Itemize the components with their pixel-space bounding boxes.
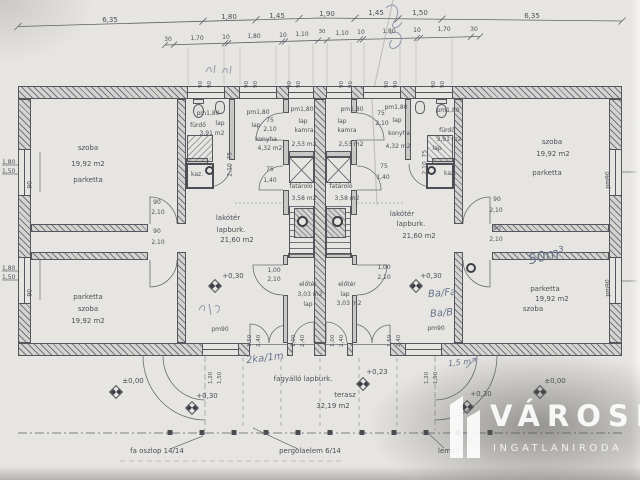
- jamb-dim: 90: [287, 81, 293, 88]
- jamb-dim: 90: [440, 81, 446, 88]
- parapet-dim: pm90: [605, 171, 612, 188]
- room-name: konyha: [388, 131, 410, 138]
- dim-label: 6,35: [102, 17, 118, 25]
- room-name: kamra: [337, 128, 356, 135]
- wall-right: [609, 99, 622, 150]
- boiler-label: kaz.: [444, 171, 456, 178]
- door-dim: 1,00: [291, 335, 297, 347]
- room-floor: lap: [215, 121, 224, 128]
- wall-top-center: [313, 86, 327, 99]
- terrace-name: terasz: [334, 392, 356, 400]
- dim-label: 1,45: [368, 10, 384, 18]
- door-dim: 2,10: [151, 240, 164, 247]
- room-floor: lap: [303, 302, 312, 309]
- room-area: 4,32 m2: [386, 144, 411, 151]
- dim-label: 1,45: [269, 13, 285, 21]
- watermark-logo-icon: [467, 410, 480, 458]
- room-floor: parketta: [73, 177, 103, 185]
- wall-top: [224, 86, 240, 99]
- dim-label: 30: [319, 29, 326, 35]
- parapet: pm1,80: [290, 107, 313, 114]
- jamb-dim: 90: [253, 81, 259, 88]
- door-dim: 2,40: [396, 335, 402, 347]
- wall-bottom: [18, 343, 203, 356]
- elevation-marker-icon: [357, 378, 368, 389]
- wall-szoba-tl: [177, 99, 186, 224]
- parapet-dim: pm90: [605, 279, 612, 296]
- jamb-dim: 90: [339, 81, 345, 88]
- note-pergola: pergolaelem 6/14: [279, 448, 341, 456]
- door-dim: 2,10: [489, 237, 502, 244]
- door-dim: 90: [493, 197, 501, 204]
- jamb-dim: 90: [207, 81, 213, 88]
- room-floor: lap: [298, 119, 307, 126]
- room-area: 3,58 m2: [292, 196, 317, 203]
- room-name: lakótér: [390, 211, 414, 219]
- door-dim: 2,10: [227, 163, 234, 176]
- door-dim: 90: [153, 200, 161, 207]
- wall-eloter-e-r: [352, 255, 357, 265]
- parapet-dim: pm90: [211, 327, 228, 334]
- dim-label: 1,10: [295, 32, 308, 39]
- floorplan-photo: 6,35 1,80 1,45 1,90 1,45 1,50 6,35 30 1,…: [0, 0, 640, 480]
- wall-bottom-center: [314, 343, 326, 356]
- wall-right: [609, 303, 622, 343]
- room-area: 3,91 m2: [437, 137, 462, 144]
- dim-label: 1,80: [247, 34, 260, 41]
- room-floor: lapburk.: [217, 227, 246, 235]
- parapet: pm1,80: [384, 105, 407, 112]
- column-circle-r: [466, 263, 476, 273]
- parapet: pm1,80: [340, 107, 363, 114]
- door-dim: 90: [493, 226, 501, 233]
- shower-l: [187, 135, 213, 162]
- door-dim: 75: [227, 152, 234, 160]
- door-dim: 1,50: [387, 335, 393, 347]
- handwritten-note: Ba/Fa: [428, 287, 457, 300]
- party-wall: [314, 99, 326, 343]
- room-area: 3,58 m2: [335, 196, 360, 203]
- room-area: 19,92 m2: [535, 296, 569, 304]
- stair-upper-r: [326, 157, 351, 183]
- door-dim: 1,40: [263, 178, 276, 185]
- room-floor: lapburk.: [397, 221, 426, 229]
- boiler-label: kaz.: [191, 172, 203, 179]
- room-area: 2,53 m2: [292, 142, 317, 149]
- door-dim: 2,10: [375, 121, 388, 128]
- room-floor: parketta: [532, 170, 562, 178]
- window-dim: 1,80: [2, 266, 15, 273]
- room-area: 3,03 m2: [298, 292, 323, 299]
- jamb-dim: 90: [244, 81, 250, 88]
- dim-label: 1,50: [412, 10, 428, 18]
- door-dim: 1,00: [377, 265, 390, 272]
- door-dim: 2,40: [339, 335, 345, 347]
- handwritten-note: 2ka/1m: [245, 351, 284, 367]
- photo-vignette: [0, 0, 90, 60]
- level-label: +0,30: [196, 393, 217, 401]
- room-floor: lap: [251, 123, 260, 130]
- parapet-dim: pm90: [427, 326, 444, 333]
- wall-top: [452, 86, 622, 99]
- wall-szoba-tr-s: [492, 224, 609, 232]
- room-floor: lap: [432, 146, 441, 153]
- window-dim: 1,50: [2, 169, 15, 176]
- room-name: szoba: [542, 139, 562, 147]
- window-dim: 1,50: [217, 372, 223, 384]
- door-dim: 75: [422, 150, 429, 158]
- terrace-area: 32,19 m2: [316, 403, 350, 411]
- door-dim: 1,40: [376, 175, 389, 182]
- door-dim: 90: [153, 229, 161, 236]
- sink-r: [415, 101, 425, 114]
- wall-left: [18, 303, 31, 343]
- dim-ticks-row2: [162, 34, 483, 49]
- room-area: 21,60 m2: [402, 233, 436, 241]
- wall-right: [609, 195, 622, 258]
- wall-szoba-bl: [177, 252, 186, 343]
- room-name: lakótér: [216, 215, 240, 223]
- level-label: +0,30: [222, 273, 243, 281]
- door-dim: 2,10: [263, 127, 276, 134]
- door-dim: 75: [266, 118, 274, 125]
- door-dim: 2,40: [256, 335, 262, 347]
- agency-watermark: VÁROSI INGATLANIRODA: [436, 386, 640, 478]
- flue-circle-l: [297, 216, 308, 227]
- wall-eloter-w-l: [283, 255, 288, 265]
- room-area: 2,53 m2: [339, 142, 364, 149]
- parapet: pm1,80: [436, 108, 459, 115]
- handwritten-note: Ba/B: [430, 307, 454, 320]
- dim-label: 1,10: [335, 31, 348, 38]
- dim-label: 10: [279, 33, 287, 40]
- dim-label: 30: [470, 27, 478, 34]
- room-name: fatároló: [329, 184, 352, 191]
- watermark-logo-icon: [450, 396, 463, 458]
- dim-label: 1,90: [319, 11, 335, 19]
- room-area: 19,92 m2: [71, 161, 105, 169]
- wall-konyha-kamra-l: [283, 99, 289, 113]
- door-dim: 75: [266, 167, 274, 174]
- room-name: előtér: [299, 282, 317, 289]
- room-floor: lap: [340, 292, 349, 299]
- wall-left: [18, 195, 31, 258]
- window-dim: 90: [27, 181, 34, 189]
- room-floor: parketta: [73, 294, 103, 302]
- room-floor: lap: [337, 119, 346, 126]
- room-name: előtér: [338, 282, 356, 289]
- jamb-dim: 90: [296, 81, 302, 88]
- dim-label: 1,80: [221, 14, 237, 22]
- dim-label: 1,70: [437, 27, 450, 34]
- wall-szoba-tr: [454, 99, 463, 224]
- door-dim: 1,00: [330, 335, 336, 347]
- handwritten-note: 50m³: [527, 244, 567, 268]
- room-floor: lap: [392, 118, 401, 125]
- window-dim: 1,80: [2, 160, 15, 167]
- window-bottom-left: [203, 343, 238, 356]
- door-dim: 75: [380, 164, 388, 171]
- room-area: 19,92 m2: [536, 151, 570, 159]
- wall-top: [400, 86, 416, 99]
- door-dim: 75: [377, 111, 385, 118]
- room-name: szoba: [78, 306, 98, 314]
- room-floor: parketta: [530, 286, 560, 294]
- room-area: 3,03 m2: [337, 301, 362, 308]
- room-area: 4,32 m2: [258, 146, 283, 153]
- elevation-marker-icon: [410, 280, 421, 291]
- elevation-marker-icon: [186, 402, 197, 413]
- door-dim: 2,10: [377, 275, 390, 282]
- room-area: 19,92 m2: [71, 318, 105, 326]
- window-dim: 1,20: [208, 372, 214, 384]
- door-dim: 1,00: [267, 268, 280, 275]
- level-label: +0,30: [420, 273, 441, 281]
- dim-label: 1,70: [190, 36, 203, 43]
- terrace-floor: fagyálló lapburk.: [274, 376, 333, 384]
- dim-label: 30: [164, 37, 172, 44]
- jamb-dim: 90: [198, 81, 204, 88]
- dim-label: 10: [222, 35, 230, 42]
- wall-left: [18, 99, 31, 150]
- room-name: szoba: [78, 145, 98, 153]
- level-label: ±0,00: [122, 378, 143, 386]
- wall-szoba-bl-n: [31, 252, 148, 260]
- jamb-dim: 90: [348, 81, 354, 88]
- room-area: 3,91 m2: [200, 131, 225, 138]
- jamb-dim: 90: [431, 81, 437, 88]
- jamb-dim: 90: [393, 81, 399, 88]
- watermark-subtitle: INGATLANIRODA: [493, 443, 622, 454]
- door-dim: 2,10: [489, 208, 502, 215]
- window-dim: 1,50: [2, 275, 15, 282]
- room-name: fatároló: [289, 184, 312, 191]
- window-dim: 90: [27, 289, 34, 297]
- room-name: fürdő: [439, 128, 455, 135]
- parapet: pm1,80: [246, 110, 269, 117]
- wall-top: [18, 86, 188, 99]
- dim-label: 1,80: [382, 29, 395, 36]
- door-dim: 2,10: [267, 277, 280, 284]
- room-name: konyha: [255, 137, 277, 144]
- room-name: szoba: [523, 306, 543, 314]
- elevation-marker-icon: [209, 280, 220, 291]
- door-dim: 2,40: [300, 335, 306, 347]
- door-dim: 2,10: [151, 210, 164, 217]
- room-area: 21,60 m2: [220, 237, 254, 245]
- flue-circle-r: [332, 216, 343, 227]
- wall-bottom: [347, 343, 353, 356]
- wall-eloter-w-l: [283, 295, 288, 343]
- door-dim: 1,50: [247, 335, 253, 347]
- wall-szoba-tl-s: [31, 224, 148, 232]
- watermark-title: VÁROSI: [490, 399, 640, 433]
- jamb-dim: 90: [384, 81, 390, 88]
- door-dim: 2,10: [422, 161, 429, 174]
- parapet: pm1,80: [196, 111, 219, 118]
- dim-label: 10: [357, 30, 365, 37]
- stair-upper-l: [289, 157, 314, 183]
- room-name: kamra: [294, 128, 313, 135]
- note-post: fa oszlop 14/14: [130, 448, 184, 456]
- dim-label: 10: [413, 28, 421, 35]
- boiler-flue-l: [205, 166, 214, 175]
- dim-label: 6,35: [524, 13, 540, 21]
- room-name: fürdő: [190, 123, 206, 130]
- elevation-marker-icon: [110, 386, 121, 397]
